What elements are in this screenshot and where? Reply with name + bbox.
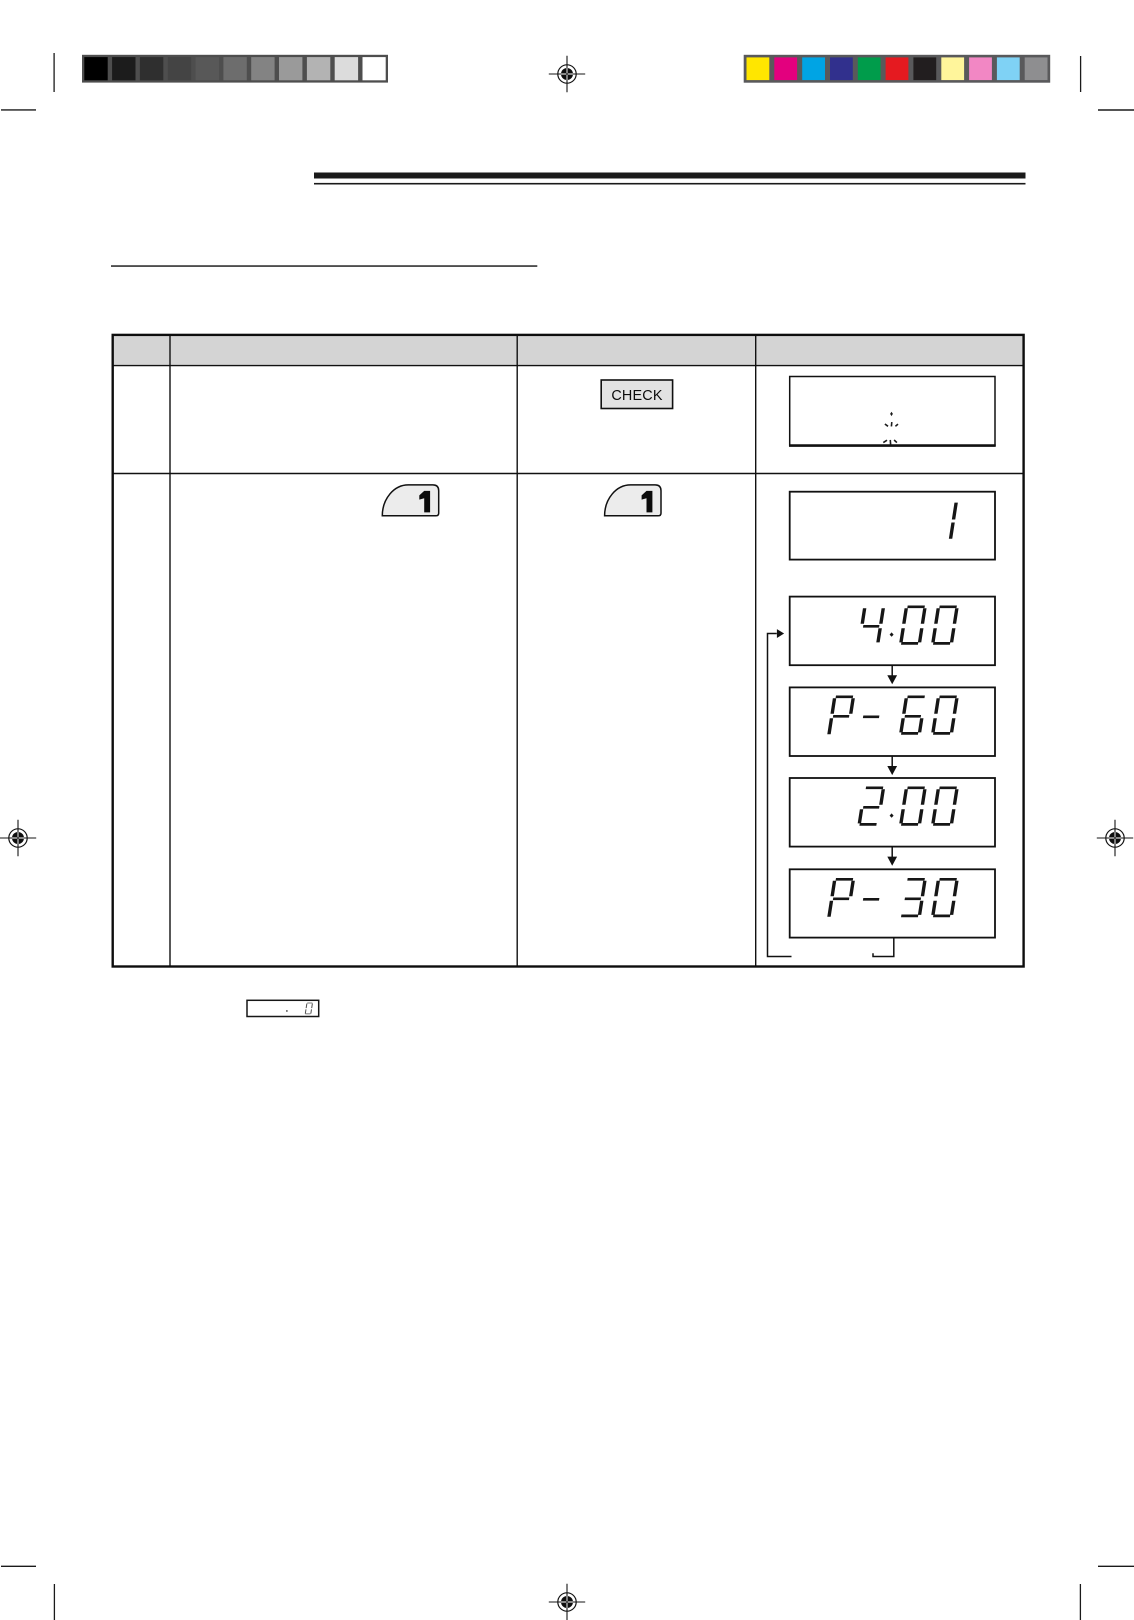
svg-text:CHECK: CHECK [611,388,663,404]
